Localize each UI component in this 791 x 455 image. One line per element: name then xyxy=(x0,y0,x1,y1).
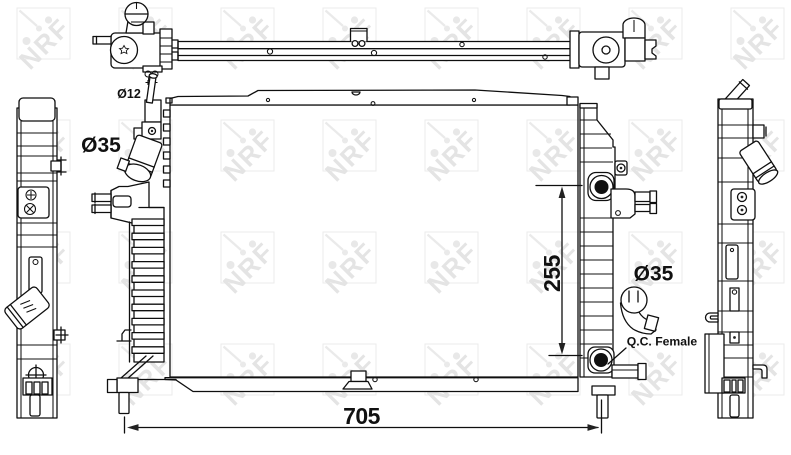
svg-text:Ø35: Ø35 xyxy=(634,263,674,286)
svg-text:Ø35: Ø35 xyxy=(81,134,121,157)
svg-text:Ø12: Ø12 xyxy=(117,87,141,101)
svg-text:705: 705 xyxy=(343,403,381,429)
svg-text:Q.C. Female: Q.C. Female xyxy=(627,335,698,349)
svg-text:255: 255 xyxy=(539,254,565,292)
